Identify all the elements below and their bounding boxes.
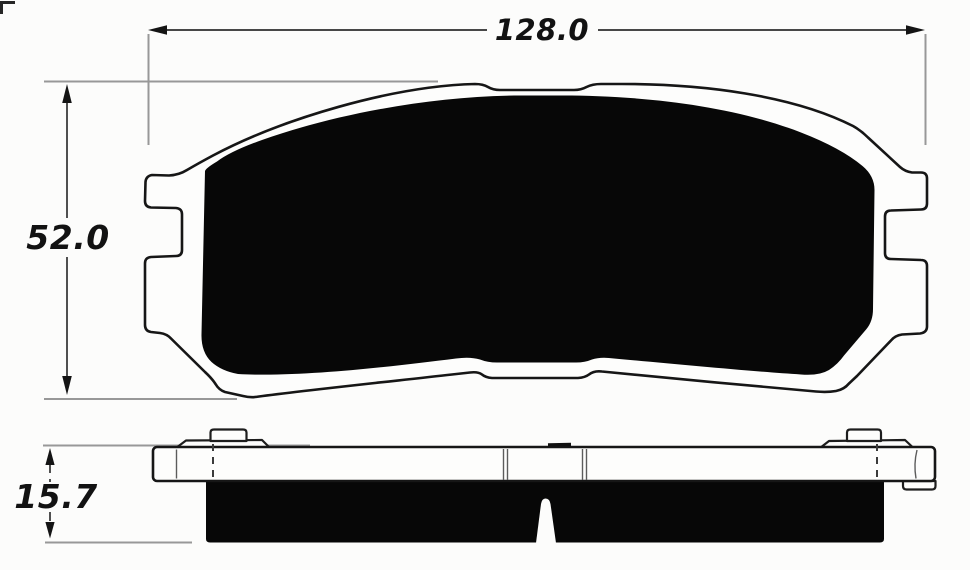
dimension-thickness: 15.7 xyxy=(14,448,97,539)
thickness-dimension-label: 15.7 xyxy=(14,477,97,516)
right-clip-tab xyxy=(847,430,881,442)
arrow-right-icon xyxy=(906,25,925,35)
height-dimension-label: 52.0 xyxy=(26,218,109,257)
arrow-left-icon xyxy=(148,25,167,35)
front-view xyxy=(145,84,927,397)
width-dimension-label: 128.0 xyxy=(495,13,589,47)
arrow-up-icon xyxy=(45,448,54,465)
side-backing-plate xyxy=(153,447,935,481)
arrow-up-icon xyxy=(62,84,72,103)
left-clip-tab xyxy=(211,430,247,442)
arrow-down-icon xyxy=(45,522,54,539)
friction-material-front xyxy=(201,96,874,375)
drawing-svg: 128.0 52.0 xyxy=(0,0,970,570)
arrow-down-icon xyxy=(62,376,72,395)
plate-top-bump xyxy=(548,445,571,446)
side-view xyxy=(43,430,936,544)
brake-pad-drawing: 128.0 52.0 xyxy=(0,0,970,570)
scan-corner-artifact xyxy=(2,3,16,15)
